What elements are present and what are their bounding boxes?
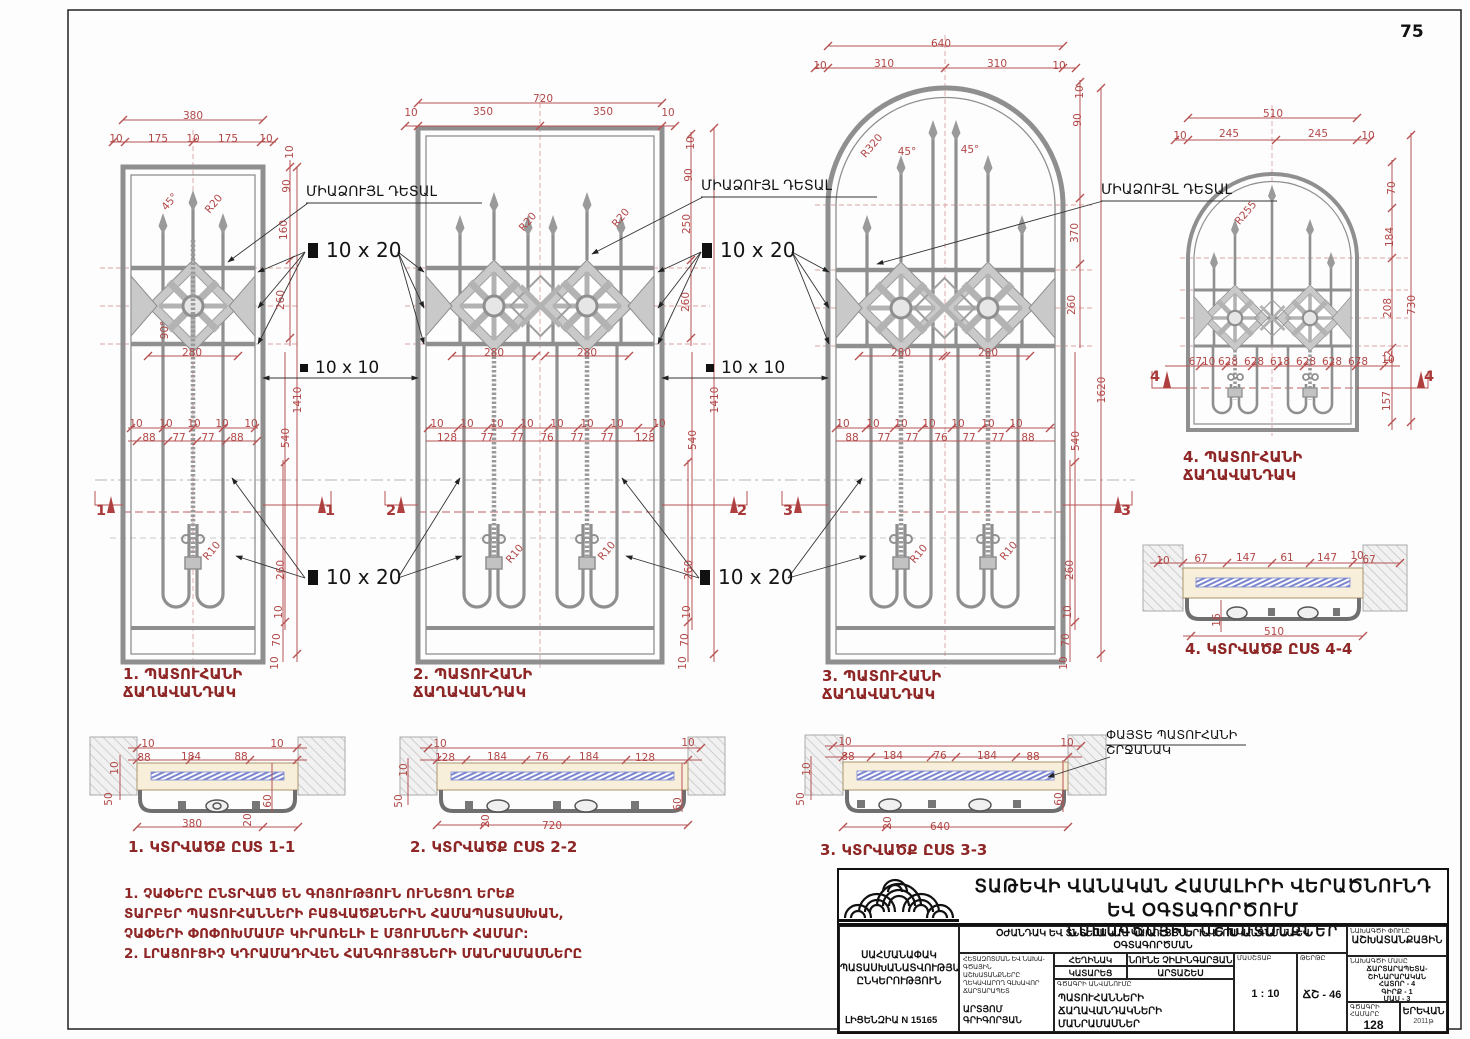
project-scope-cell: ՕԺԱՆԴԱԿ ԵՎ ՏՆՏԵՍԱԿԱՆ ԿԱՌՈՒՅՑՆԵՐԻ ՎԵՐԱԿԱՆ…	[959, 926, 1347, 953]
bar-profile-icon	[300, 364, 308, 372]
note-line: 2. ԼՐԱՑՈՒՑԻՉ ԿԴՐԱՄԱԴՐՎԵՆ ՀԱՆԳՈՒՅՑՆԵՐԻ ՄԱ…	[124, 944, 582, 964]
grille-1-title: 1. ՊԱՏՈՒՀԱՆԻՃԱՂԱՎԱՆԴԱԿ	[123, 665, 242, 701]
dimension-ticks	[109, 42, 1415, 831]
scale-value: 1 : 10	[1235, 988, 1296, 1000]
section-3-title: 3. ԿՏՐՎԱԾՔ ԸՍՏ 3-3	[820, 841, 987, 859]
city-year-cell: ԵՐԵՎԱՆ 2011թ	[1400, 1002, 1447, 1032]
performer-name-cell: ԱՐՏԱՇԵՍ ԳՐԻԳՈՐՅԱՆ	[1127, 966, 1234, 979]
sheet-cell: ԹԵՐԹԸ ՃՇ - 46	[1297, 953, 1347, 1032]
section-1-title: 1. ԿՏՐՎԱԾՔ ԸՍՏ 1-1	[128, 838, 295, 856]
grille-2-title: 2. ՊԱՏՈՒՀԱՆԻՃԱՂԱՎԱՆԴԱԿ	[413, 665, 532, 701]
author-name-cell: ՆՈՒՆԵ ՉԻԼԻՆԳԱՐՅԱՆ	[1127, 953, 1234, 966]
grille-3-drawing	[828, 88, 1063, 662]
license-number: ԼԻՑԵՆԶԻԱ N 15165	[845, 1015, 937, 1026]
page-number: 75	[1400, 22, 1424, 42]
phase-caption: ՆԱԽԱԳԾԻ ՓՈՒԼԸ	[1348, 927, 1446, 935]
drawing-name-caption: ԳԾԱԳՐԻ ԱՆՎԱՆՈՒՄԸ	[1055, 980, 1233, 988]
dimension-lines	[95, 46, 1428, 827]
drawing-sheet: 380101751017510109016026045°R2090°280141…	[0, 0, 1470, 1039]
bar-profile-icon	[702, 243, 712, 258]
city-label: ԵՐԵՎԱՆ	[1401, 1006, 1446, 1017]
grille-4-title: 4. ՊԱՏՈՒՀԱՆԻՃԱՂԱՎԱՆԴԱԿ	[1183, 448, 1302, 484]
project-header: ՏԱԹԵՎԻ ՎԱՆԱԿԱՆ ՀԱՄԱԼԻՐԻ ՎԵՐԱԾՆՈՒՆԴ ԵՎ ՕԳ…	[959, 870, 1447, 923]
callout-bar-10x10-1: 10 x 10	[300, 358, 379, 378]
section-2-title: 2. ԿՏՐՎԱԾՔ ԸՍՏ 2-2	[410, 838, 577, 856]
drawing-name-cell: ԳԾԱԳՐԻ ԱՆՎԱՆՈՒՄԸ ՊԱՏՈՒՀԱՆՆԵՐԻ ՃԱՂԱՎԱՆԴԱԿ…	[1054, 979, 1234, 1032]
callout-bar-10x20-2: 10 x 20	[702, 238, 795, 262]
phase-cell: ՆԱԽԱԳԾԻ ՓՈՒԼԸ ԱՇԽԱՏԱՆՔԱՅԻՆ	[1347, 926, 1447, 956]
title-block: ՏԱԹԵՎԻ ՎԱՆԱԿԱՆ ՀԱՄԱԼԻՐԻ ՎԵՐԱԾՆՈՒՆԴ ԵՎ ՕԳ…	[837, 868, 1449, 1034]
scale-cell: ՄԱՍՇՏԱԲ 1 : 10	[1234, 953, 1297, 1032]
company-cell: ՍԱՀՄԱՆԱՓԱԿ ՊԱՏԱՍԽԱՆԱՏՎՈՒԹՅԱՄԲ ԸՆԿԵՐՈՒԹՅՈ…	[839, 926, 959, 1032]
callout-leaders	[228, 197, 1277, 777]
bar-profile-icon	[308, 243, 318, 258]
grille-3-title: 3. ՊԱՏՈՒՀԱՆԻՃԱՂԱՎԱՆԴԱԿ	[822, 667, 941, 703]
drawing-number-cell: ԳԾԱԳՐԻ ՀԱՄԱՐԸ 128	[1347, 1002, 1400, 1032]
note-line: ՏԱՐԲԵՐ ՊԱՏՈՒՀԱՆՆԵՐԻ ԲԱՑՎԱԾՔՆԵՐԻՆ ՀԱՄԱՊԱՏ…	[124, 904, 582, 924]
callout-monolith-detail-2: ՄԻԱՁՈՒՅԼ ԴԵՏԱԼ	[701, 178, 832, 194]
callout-bar-10x20-1: 10 x 20	[308, 238, 401, 262]
sheet-caption: ԹԵՐԹԸ	[1298, 954, 1346, 962]
section-marker-flags	[107, 371, 1425, 513]
drawing-number-value: 128	[1348, 1018, 1399, 1032]
chief-architect-name: ԱՐՏՅՈՄ ԳՐԻԳՈՐՅԱՆ	[963, 1004, 1053, 1026]
scale-caption: ՄԱՍՇՏԱԲ	[1235, 954, 1296, 962]
bar-profile-icon	[700, 570, 710, 585]
project-part-cell: ՆԱԽԱԳԾԻ ՄԱՍԸ ՃԱՐՏԱՐԱՊԵՏԱ- ՇԻՆԱՐԱՐԱԿԱՆ ՀԱ…	[1347, 956, 1447, 1002]
chief-architect-cell: ՀԵՏԱԶՈՏՄԱՆ ԵՎ ՆԱԽԱ- ԳԾԱՅԻՆ ԱՇԽԱՏԱՆՔՆԵՐԸ …	[959, 953, 1054, 1032]
general-notes: 1. ՉԱՓԵՐԸ ԸՆՏՐՎԱԾ ԵՆ ԳՈՅՈՒԹՅՈՒՆ ՈՒՆԵՑՈՂ …	[124, 884, 582, 964]
callout-bar-10x20-4: 10 x 20	[700, 565, 793, 589]
bar-profile-icon	[706, 364, 714, 372]
sheet-value: ՃՇ - 46	[1298, 988, 1346, 1001]
bar-profile-icon	[308, 570, 318, 585]
note-line: 1. ՉԱՓԵՐԸ ԸՆՏՐՎԱԾ ԵՆ ԳՈՅՈՒԹՅՈՒՆ ՈՒՆԵՑՈՂ …	[124, 884, 582, 904]
performed-label-cell: ԿԱՏԱՐԵՑ	[1054, 966, 1127, 979]
section-4-title: 4. ԿՏՐՎԱԾՔ ԸՍՏ 4-4	[1185, 640, 1352, 658]
callout-bar-10x10-2: 10 x 10	[706, 358, 785, 378]
company-logo	[839, 870, 959, 923]
callout-monolith-detail-1: ՄԻԱՁՈՒՅԼ ԴԵՏԱԼ	[306, 184, 437, 200]
callout-bar-10x20-3: 10 x 20	[308, 565, 401, 589]
note-line: ՉԱՓԵՐԻ ՓՈՓՈԽՄԱՄԲ ԿԻՐԱՌԵԼԻ Է ՄՅՈՒՍՆԵՐԻ ՀԱ…	[124, 924, 582, 944]
year-label: 2011թ	[1401, 1017, 1446, 1025]
callout-wood-frame: ՓԱՅՏԵ ՊԱՏՈՒՀԱՆԻ ՇՐՋԱՆԱԿ	[1106, 727, 1237, 757]
phase-value: ԱՇԽԱՏԱՆՔԱՅԻՆ	[1348, 935, 1446, 946]
author-label-cell: ՀԵՂԻՆԱԿ	[1054, 953, 1127, 966]
drawing-number-caption: ԳԾԱԳՐԻ ՀԱՄԱՐԸ	[1348, 1003, 1399, 1018]
grille-4-drawing	[1188, 174, 1357, 430]
project-header-line1: ՏԱԹԵՎԻ ՎԱՆԱԿԱՆ ՀԱՄԱԼԻՐԻ ՎԵՐԱԾՆՈՒՆԴ ԵՎ ՕԳ…	[959, 874, 1447, 922]
callout-monolith-detail-3: ՄԻԱՁՈՒՅԼ ԴԵՏԱԼ	[1101, 182, 1232, 198]
